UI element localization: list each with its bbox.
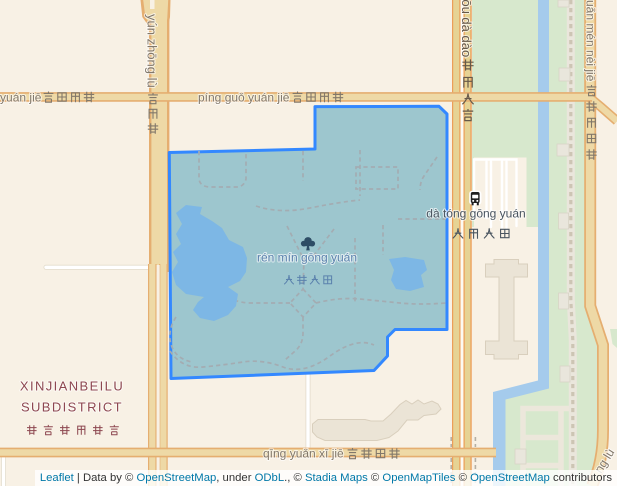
svg-text:dà tóng gōng yuán: dà tóng gōng yuán: [426, 207, 525, 221]
svg-text:qīng yuǎn xī jiē: qīng yuǎn xī jiē: [263, 447, 344, 461]
svg-text:XINJIANBEILU: XINJIANBEILU: [20, 379, 124, 394]
svg-text:píng guǒ yuán jiē: píng guǒ yuán jiē: [0, 91, 42, 105]
svg-text:wèi dōu dà dào: wèi dōu dà dào: [459, 0, 474, 57]
svg-text:SUBDISTRICT: SUBDISTRICT: [21, 400, 123, 415]
svg-text:yún zhōng lù: yún zhōng lù: [145, 14, 160, 88]
svg-text:rén mín gōng yuán: rén mín gōng yuán: [257, 251, 357, 265]
svg-text:píng guǒ yuán jiē: píng guǒ yuán jiē: [198, 91, 290, 105]
svg-text:uǎn mén nèi jiē: uǎn mén nèi jiē: [584, 0, 598, 82]
